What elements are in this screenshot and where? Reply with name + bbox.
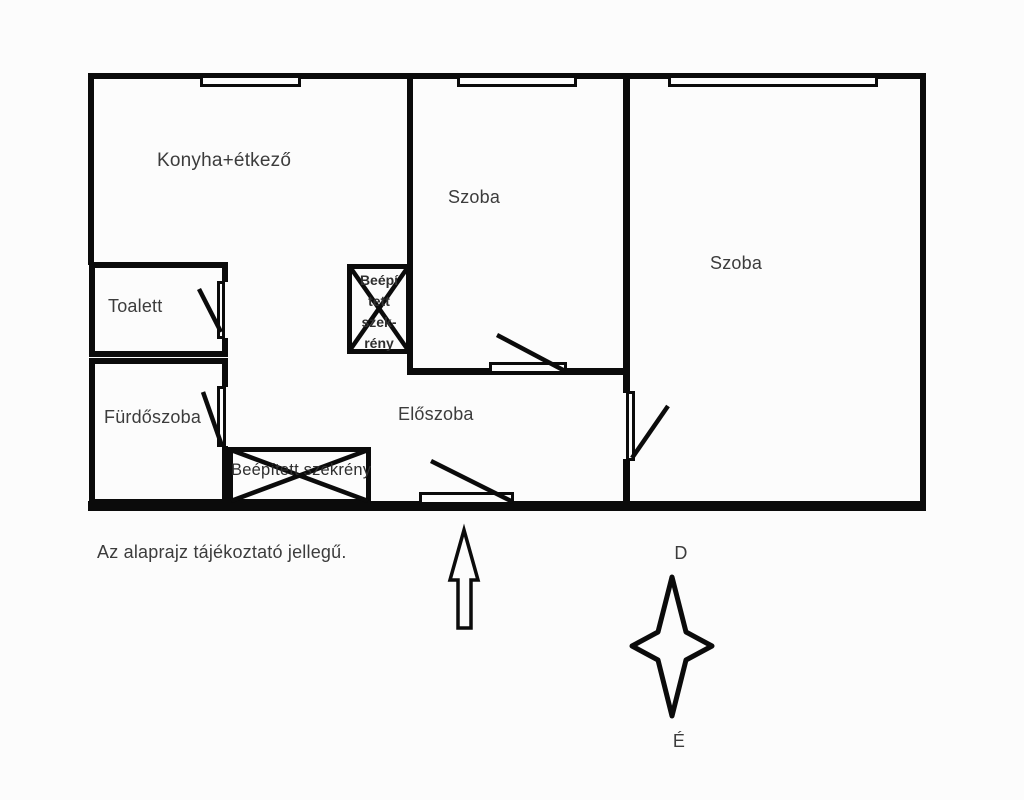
- compass-star-icon: [632, 577, 712, 716]
- room-label-bathroom: Fürdőszoba: [104, 407, 201, 428]
- room-label-kitchen: Konyha+étkező: [157, 150, 291, 172]
- disclaimer-text: Az alaprajz tájékoztató jellegű.: [97, 542, 347, 563]
- floorplan: Konyha+étkező Szoba Szoba Toalett Fürdős…: [0, 0, 1024, 800]
- window-room-middle: [457, 75, 577, 87]
- wall-hallway-room-lower: [623, 459, 630, 506]
- compass-bottom-label: É: [664, 731, 694, 752]
- wall-right: [920, 73, 926, 511]
- north-arrow-icon: [450, 530, 478, 628]
- bathroom-room-outline: [89, 358, 228, 505]
- room-label-room-middle: Szoba: [448, 187, 500, 208]
- wardrobe-small-label-line: rény: [364, 333, 394, 354]
- room-middle-door-threshold: [489, 362, 567, 374]
- room-right-door-jamb: [626, 391, 635, 461]
- wardrobe-small-label-line: Beépí: [360, 270, 398, 291]
- room-label-hallway: Előszoba: [398, 404, 474, 425]
- wall-left-upper: [88, 73, 94, 265]
- wall-hallway-room-upper: [623, 73, 630, 393]
- wardrobe-small-label-line: szek-: [361, 312, 396, 333]
- window-kitchen: [200, 75, 301, 87]
- toilet-door-jamb: [217, 281, 225, 339]
- compass-top-label: D: [666, 543, 696, 564]
- wardrobe-large-label: Beépített szekrény: [231, 461, 371, 480]
- window-room-right: [668, 75, 878, 87]
- wardrobe-small-label-line: tett: [368, 291, 390, 312]
- room-label-room-right: Szoba: [710, 253, 762, 274]
- entrance-door-threshold: [419, 492, 514, 505]
- room-right-door-swing-line: [632, 406, 668, 458]
- wardrobe-small-label: Beépí tett szek- rény: [349, 270, 409, 354]
- bathroom-door-jamb: [217, 386, 226, 447]
- room-label-toilet: Toalett: [108, 296, 162, 317]
